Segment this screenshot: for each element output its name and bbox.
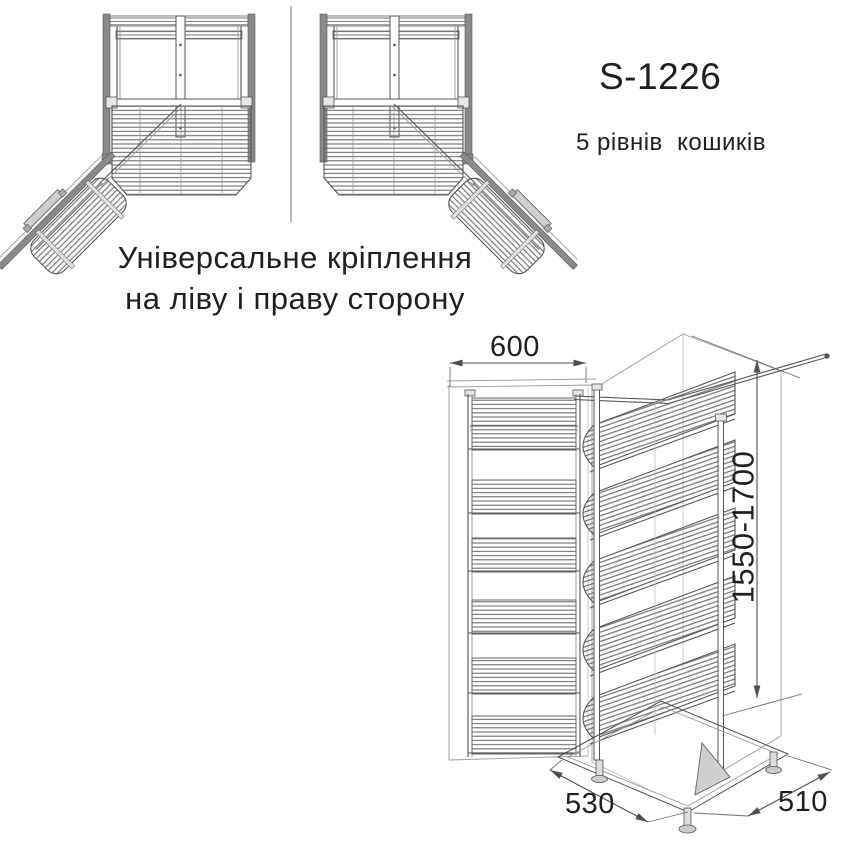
- levels-label: 5 рівнів кошиків: [576, 130, 766, 155]
- dimension-width: [450, 363, 586, 387]
- iso-view-drawing: [574, 334, 830, 795]
- dim-height-label: 1550-1700: [728, 451, 761, 604]
- model-label: S-1226: [599, 58, 721, 97]
- dim-depth-side-label: 510: [778, 787, 828, 817]
- mounting-note-line1: Універсальне кріплення: [110, 242, 480, 275]
- dim-depth-front-label: 530: [565, 789, 615, 819]
- dim-width-label: 600: [490, 332, 540, 362]
- technical-drawing-page: S-1226 5 рівнів кошиків Універсальне крі…: [0, 0, 860, 860]
- mounting-note-line2: на ліву і праву сторону: [110, 283, 480, 316]
- front-view-drawing: [447, 379, 596, 760]
